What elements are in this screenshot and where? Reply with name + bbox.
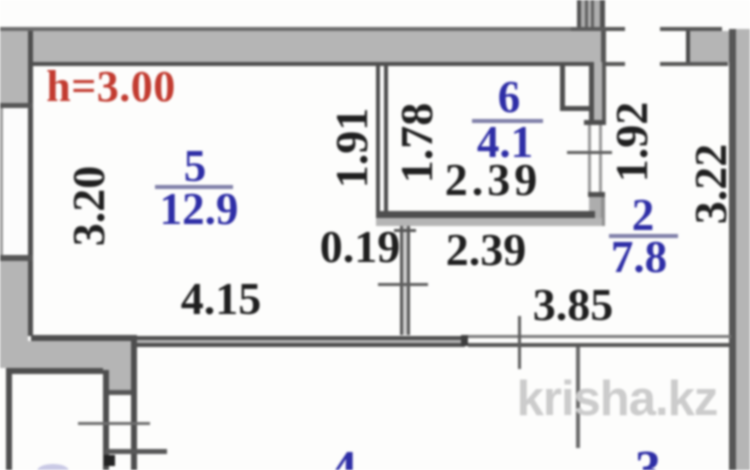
svg-text:7.8: 7.8 [611, 232, 667, 282]
svg-text:4.15: 4.15 [181, 273, 262, 324]
svg-text:2.39: 2.39 [446, 224, 527, 275]
svg-text:2.39: 2.39 [445, 154, 542, 205]
svg-text:4: 4 [331, 441, 357, 470]
svg-text:1.92: 1.92 [606, 102, 657, 183]
svg-text:krisha.kz: krisha.kz [517, 372, 718, 426]
svg-text:12.9: 12.9 [160, 184, 239, 234]
svg-text:0.19: 0.19 [320, 221, 401, 272]
svg-text:1.78: 1.78 [391, 103, 442, 184]
svg-text:h=3.00: h=3.00 [46, 62, 176, 111]
svg-text:3: 3 [635, 441, 661, 470]
svg-text:3.20: 3.20 [63, 166, 114, 247]
svg-text:3.22: 3.22 [685, 144, 736, 225]
svg-text:3.85: 3.85 [533, 279, 614, 330]
svg-text:1.91: 1.91 [326, 108, 377, 189]
svg-text:6: 6 [498, 72, 521, 122]
